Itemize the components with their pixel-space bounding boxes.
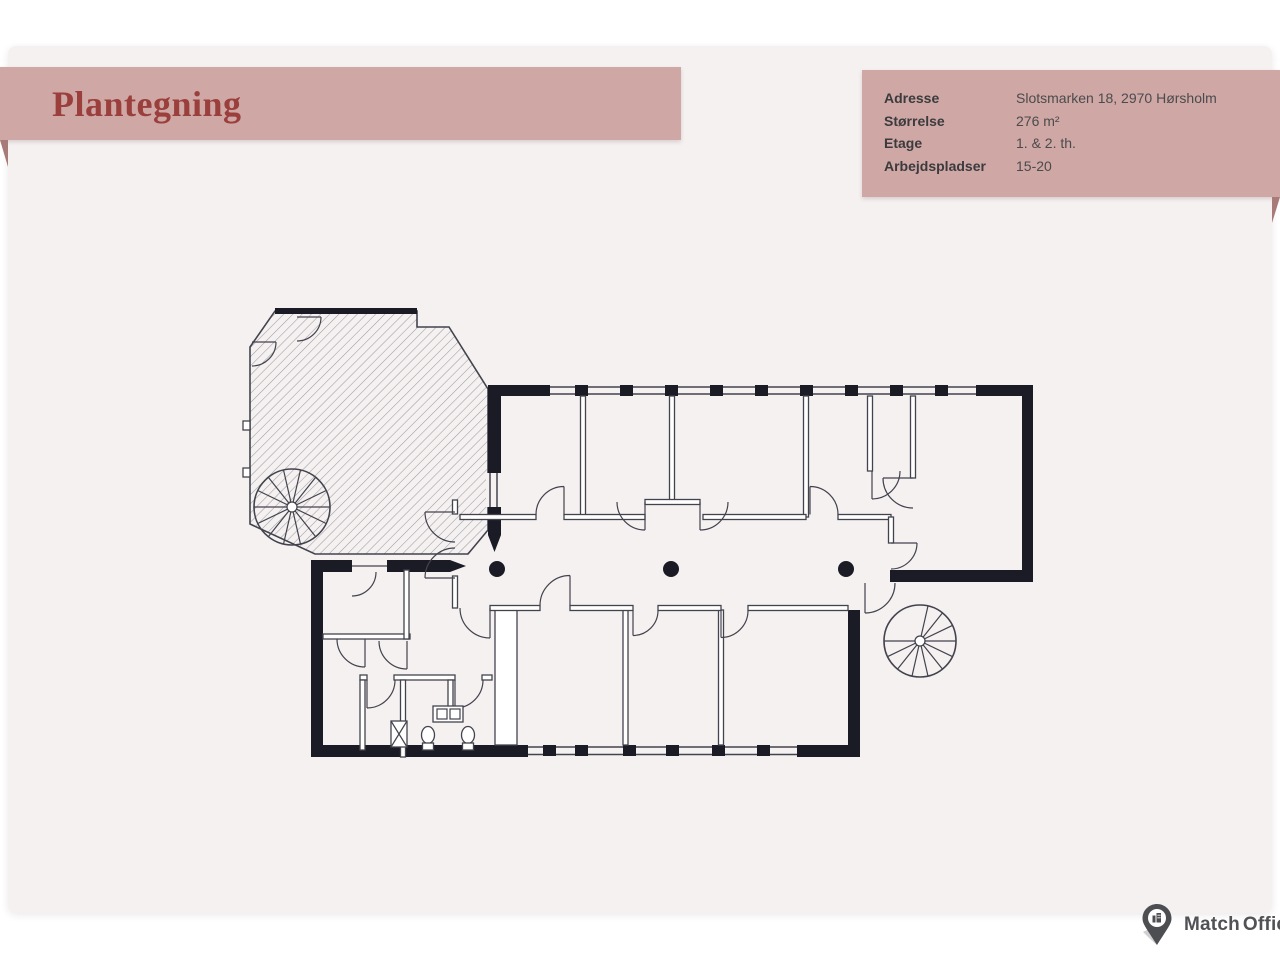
info-row-etage: Etage 1. & 2. th.	[884, 132, 1280, 155]
toilet-icon	[462, 727, 475, 744]
slide: Plantegning Adresse Slotsmarken 18, 2970…	[0, 0, 1280, 960]
info-value: 276 m²	[1016, 110, 1060, 133]
matchoffice-logo[interactable]: MatchOffice	[1136, 902, 1280, 948]
info-row-stoerrelse: Størrelse 276 m²	[884, 110, 1280, 133]
info-label: Arbejdspladser	[884, 155, 1016, 178]
info-row-adresse: Adresse Slotsmarken 18, 2970 Hørsholm	[884, 87, 1280, 110]
info-banner: Adresse Slotsmarken 18, 2970 Hørsholm St…	[862, 70, 1280, 197]
info-value: Slotsmarken 18, 2970 Hørsholm	[1016, 87, 1217, 110]
toilet-icon	[422, 727, 435, 744]
page-title: Plantegning	[0, 83, 242, 125]
spiral-staircase-icon	[884, 605, 956, 677]
info-label: Adresse	[884, 87, 1016, 110]
title-banner: Plantegning	[0, 67, 681, 140]
info-row-arbejdspladser: Arbejdspladser 15-20	[884, 155, 1280, 178]
info-value: 15-20	[1016, 155, 1052, 178]
info-label: Størrelse	[884, 110, 1016, 133]
columns	[489, 561, 854, 577]
shaft	[495, 608, 517, 745]
info-value: 1. & 2. th.	[1016, 132, 1076, 155]
info-label: Etage	[884, 132, 1016, 155]
map-pin-icon	[1136, 902, 1178, 948]
logo-text: MatchOffice	[1184, 914, 1280, 936]
hatched-area	[243, 308, 488, 554]
